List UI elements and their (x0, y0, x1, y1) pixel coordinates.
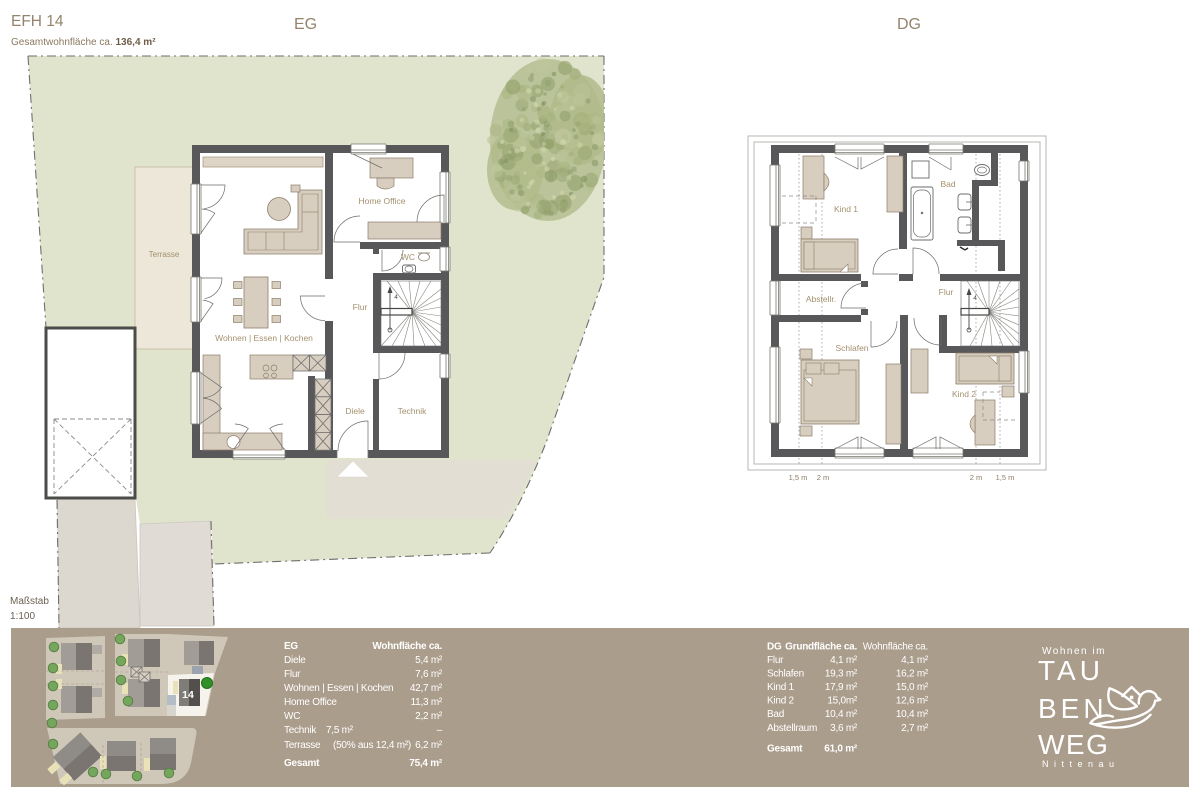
svg-text:Gesamtwohnfläche ca. 136,4 m²: Gesamtwohnfläche ca. 136,4 m² (11, 37, 156, 48)
svg-text:Flur: Flur (353, 302, 368, 312)
svg-text:Home Office: Home Office (284, 697, 337, 708)
svg-text:Wohnfläche ca.: Wohnfläche ca. (863, 642, 928, 653)
svg-text:Schlafen: Schlafen (835, 343, 868, 353)
svg-text:1,5 m: 1,5 m (789, 473, 808, 482)
svg-text:3,6 m²: 3,6 m² (830, 723, 858, 734)
svg-text:7,5 m²: 7,5 m² (326, 725, 354, 736)
svg-text:Kind 2: Kind 2 (952, 389, 976, 399)
svg-text:Terrasse: Terrasse (284, 740, 321, 751)
svg-text:WEG: WEG (1038, 729, 1109, 760)
svg-text:19,3 m²: 19,3 m² (825, 669, 858, 680)
svg-text:14: 14 (182, 689, 194, 701)
svg-text:Maßstab: Maßstab (10, 596, 49, 607)
svg-text:EFH 14: EFH 14 (11, 13, 64, 30)
svg-text:17,9 m²: 17,9 m² (825, 682, 858, 693)
svg-text:15,0m²: 15,0m² (827, 696, 858, 707)
svg-text:Technik: Technik (284, 725, 317, 736)
svg-text:11,3 m²: 11,3 m² (411, 697, 443, 708)
svg-text:1,5 m: 1,5 m (996, 473, 1015, 482)
svg-text:16,2 m²: 16,2 m² (896, 669, 929, 680)
svg-text:61,0 m²: 61,0 m² (824, 744, 858, 755)
svg-text:(50% aus 12,4 m²): (50% aus 12,4 m²) (333, 740, 411, 751)
svg-text:Schlafen: Schlafen (767, 669, 804, 680)
svg-text:WC: WC (284, 711, 300, 722)
svg-text:Wohnfläche ca.: Wohnfläche ca. (372, 641, 442, 652)
svg-text:DG: DG (767, 642, 782, 653)
svg-text:6,2 m²: 6,2 m² (415, 740, 443, 751)
svg-text:Kind 2: Kind 2 (767, 696, 795, 707)
svg-text:12,6 m²: 12,6 m² (896, 696, 929, 707)
svg-text:75,4 m²: 75,4 m² (409, 758, 443, 769)
svg-text:Wohnen | Essen | Kochen: Wohnen | Essen | Kochen (284, 683, 393, 694)
svg-text:Kind 1: Kind 1 (767, 682, 795, 693)
svg-text:2 m: 2 m (970, 473, 983, 482)
svg-text:Diele: Diele (284, 655, 306, 666)
svg-text:Flur: Flur (939, 287, 954, 297)
svg-text:Flur: Flur (284, 669, 301, 680)
svg-text:4,1 m²: 4,1 m² (901, 655, 929, 666)
svg-text:EG: EG (284, 641, 298, 652)
svg-text:Bad: Bad (767, 709, 784, 720)
svg-text:–: – (437, 725, 443, 736)
svg-text:10,4 m²: 10,4 m² (896, 709, 929, 720)
svg-text:DG: DG (897, 16, 921, 33)
svg-text:Abstellr.: Abstellr. (806, 294, 836, 304)
svg-text:5,4 m²: 5,4 m² (415, 655, 443, 666)
svg-text:1:100: 1:100 (10, 611, 35, 622)
svg-text:42,7 m²: 42,7 m² (410, 683, 443, 694)
svg-text:N i t t e n a u: N i t t e n a u (1042, 759, 1116, 769)
svg-text:Abstellraum: Abstellraum (767, 723, 817, 734)
svg-text:Grundfläche ca.: Grundfläche ca. (785, 642, 857, 653)
svg-text:Flur: Flur (767, 655, 784, 666)
svg-text:TAU: TAU (1038, 655, 1104, 686)
svg-text:7,6 m²: 7,6 m² (415, 669, 443, 680)
svg-text:Technik: Technik (398, 406, 428, 416)
svg-text:2,2 m²: 2,2 m² (415, 711, 443, 722)
svg-text:Kind 1: Kind 1 (834, 204, 858, 214)
svg-text:2 m: 2 m (817, 473, 830, 482)
svg-text:2,7 m²: 2,7 m² (901, 723, 929, 734)
svg-text:WC: WC (401, 252, 415, 262)
svg-text:4,1 m²: 4,1 m² (830, 655, 858, 666)
svg-text:Home Office: Home Office (358, 196, 405, 206)
svg-text:BEN: BEN (1038, 693, 1108, 724)
svg-text:4: 4 (973, 295, 977, 302)
svg-text:EG: EG (294, 16, 317, 33)
svg-text:4: 4 (394, 294, 398, 301)
svg-text:10,4 m²: 10,4 m² (825, 709, 858, 720)
svg-text:15,0 m²: 15,0 m² (896, 682, 929, 693)
svg-text:Terrasse: Terrasse (149, 250, 180, 259)
svg-text:Gesamt: Gesamt (284, 758, 320, 769)
svg-text:Wohnen | Essen | Kochen: Wohnen | Essen | Kochen (215, 333, 313, 343)
svg-text:Diele: Diele (345, 406, 365, 416)
svg-text:Gesamt: Gesamt (767, 744, 803, 755)
svg-text:Bad: Bad (940, 179, 955, 189)
